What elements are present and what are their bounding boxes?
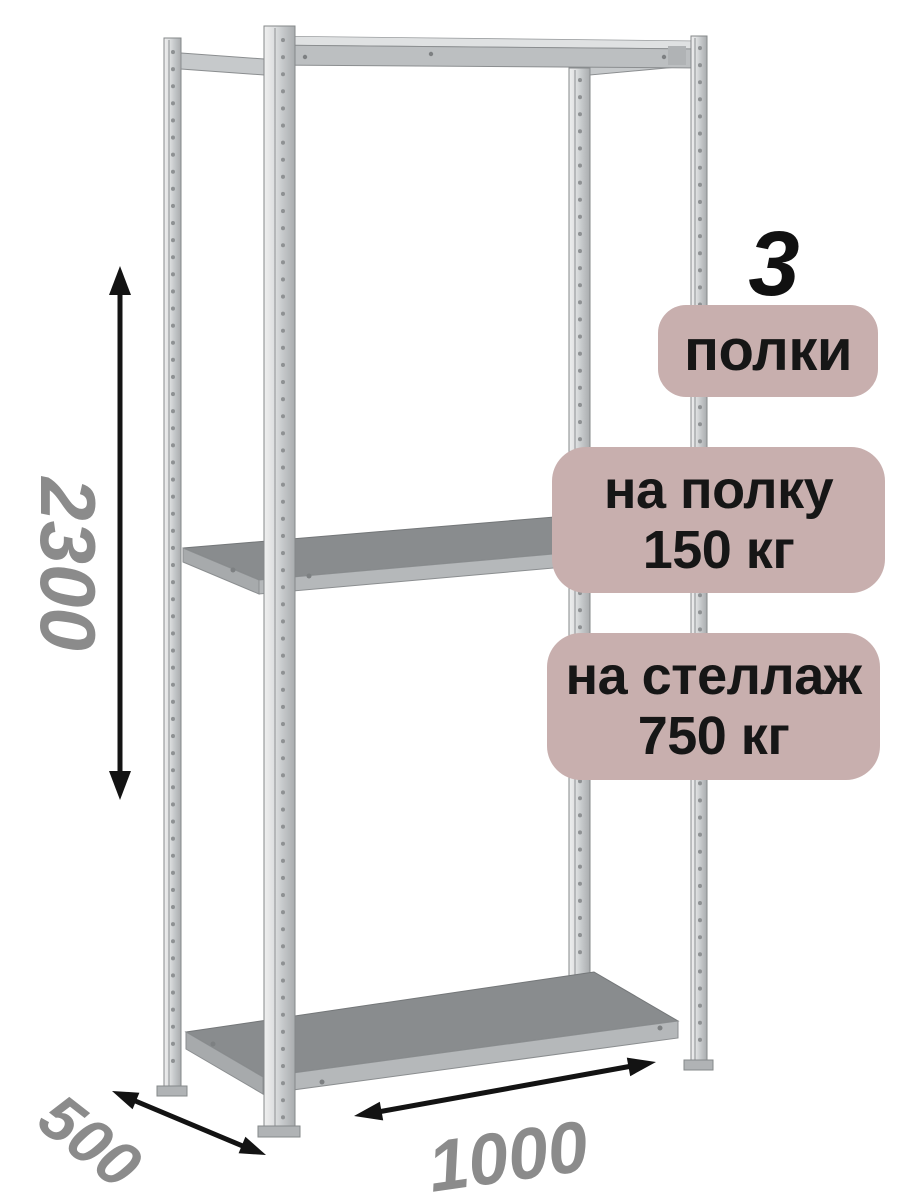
height-dimension-label: 2300: [25, 384, 111, 744]
shelving-rack-illustration: [0, 0, 900, 1200]
rack-shelf-top: [181, 36, 700, 75]
height-dimension-arrow: [109, 266, 131, 800]
product-image: 2300 500 1000 3 полки на полку 150 кг на…: [0, 0, 900, 1200]
load-per-shelf-line1: на полку: [552, 460, 885, 520]
rack-shelf-bottom: [186, 972, 678, 1094]
load-per-rack-line1: на стеллаж: [547, 646, 880, 706]
rack-post-front-left: [258, 26, 300, 1137]
load-per-rack-line2: 750 кг: [547, 706, 880, 766]
load-per-shelf-badge: на полку 150 кг: [552, 447, 885, 593]
shelf-count-badge: полки: [658, 305, 878, 397]
shelf-count-number: 3: [714, 214, 834, 314]
load-per-rack-badge: на стеллаж 750 кг: [547, 633, 880, 780]
rack-post-back-left: [157, 38, 187, 1096]
load-per-shelf-line2: 150 кг: [552, 520, 885, 580]
